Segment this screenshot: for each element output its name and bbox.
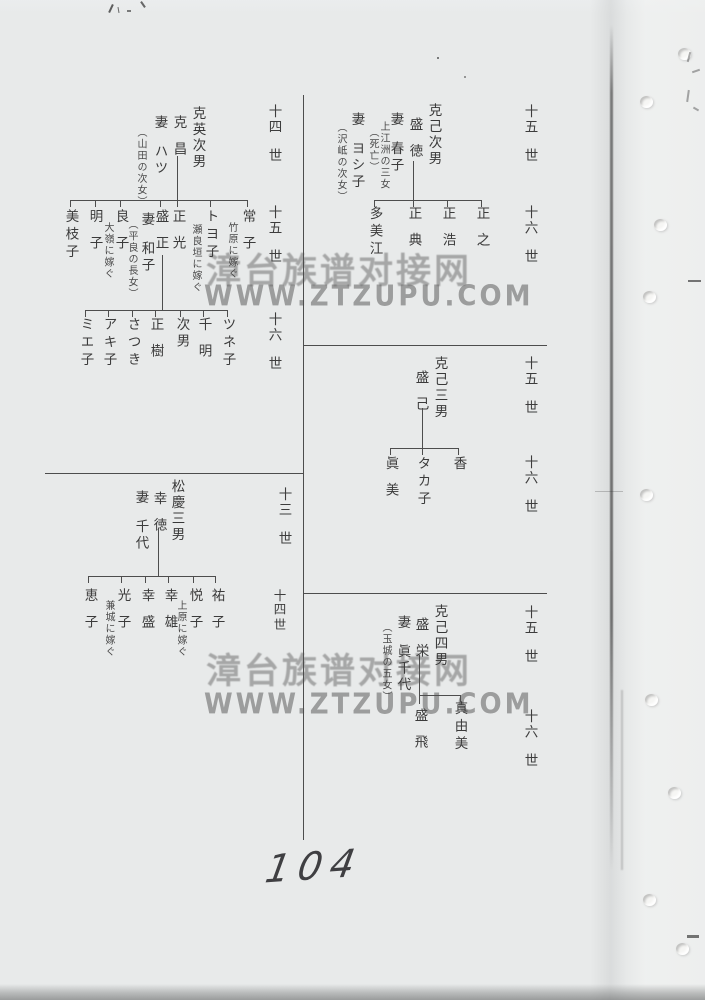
bracket-tick xyxy=(180,310,181,317)
ink-speck xyxy=(464,76,466,78)
binder-hole xyxy=(645,694,658,706)
generation-sei: 世 xyxy=(266,356,282,372)
bracket-tick xyxy=(121,576,122,583)
child-name: 香 xyxy=(451,456,465,473)
bracket-tick xyxy=(458,448,459,455)
grandchild-name: アキ子 xyxy=(101,317,115,370)
generation-number: 十五 xyxy=(522,104,538,135)
generation-sei: 世 xyxy=(266,148,282,164)
generation-marker: 十六世 xyxy=(522,205,536,265)
children-bracket xyxy=(70,200,247,201)
bracket-tick xyxy=(419,695,420,704)
ink-speck xyxy=(437,57,439,59)
wife-note: ︵山田の次女︶ xyxy=(135,127,145,208)
generation-marker: 十五世 xyxy=(522,104,536,164)
generation-number: 十四 xyxy=(272,589,287,616)
generation-number: 十六 xyxy=(522,709,538,740)
generation-sei: 世 xyxy=(522,400,538,416)
generation-marker: 十六世 xyxy=(522,709,536,769)
bracket-tick xyxy=(210,200,211,207)
bracket-tick xyxy=(95,200,96,207)
marriage-note: 竹原に嫁ぐ xyxy=(226,222,236,280)
child-name: 恵子 xyxy=(82,588,96,641)
child-name: 悦子 xyxy=(187,588,201,641)
binder-hole xyxy=(676,943,689,955)
children-bracket xyxy=(85,310,227,311)
generation-marker: 十五世 xyxy=(522,356,536,416)
section-title: 松慶三男 xyxy=(169,479,183,543)
wife-rel: 妻 xyxy=(152,115,168,132)
generation-marker: 十六世 xyxy=(266,312,280,372)
children-bracket xyxy=(419,695,460,696)
generation-sei: 世 xyxy=(522,249,538,265)
generation-number: 十五 xyxy=(522,356,538,387)
wife-name: ハツ xyxy=(152,144,168,177)
child-name: 盛正 xyxy=(153,209,167,262)
generation-marker: 十三世 xyxy=(276,487,290,547)
bracket-tick xyxy=(145,576,146,583)
child-name: 祐子 xyxy=(209,588,223,641)
wife-rel: 妻 xyxy=(133,490,149,507)
child-name: 正浩 xyxy=(440,206,454,259)
grandchild-name: 次男 xyxy=(174,317,188,350)
parent-connector xyxy=(413,161,414,200)
child-name: 幸雄 xyxy=(162,588,176,641)
generation-number: 十六 xyxy=(266,312,282,343)
generation-sei: 世 xyxy=(522,148,538,164)
center-divider-line xyxy=(303,95,304,840)
bracket-tick xyxy=(88,576,89,583)
wife-rel: 妻 xyxy=(139,212,155,229)
bracket-tick xyxy=(177,200,178,207)
parent-connector xyxy=(162,255,163,310)
generation-number: 十五 xyxy=(522,605,538,636)
grandchild-name: 千明 xyxy=(196,317,210,370)
child-name: トヨ子 xyxy=(203,209,217,262)
bracket-tick xyxy=(85,310,86,317)
generation-number: 十四 xyxy=(266,104,282,135)
watermark-url: WWW.ZTZUPU.COM xyxy=(204,281,533,313)
bracket-tick xyxy=(422,448,423,455)
grandchild-name: 正樹 xyxy=(148,317,162,370)
right-section-divider xyxy=(303,593,547,594)
parent-connector xyxy=(158,528,159,576)
wife-name: 和子 xyxy=(139,241,155,274)
wife-rel: 妻 xyxy=(395,615,411,632)
binder-hole xyxy=(654,219,667,231)
wife-note: 上江洲の三女 xyxy=(378,121,388,190)
bracket-tick xyxy=(168,576,169,583)
generation-number: 十六 xyxy=(522,205,538,236)
section-title: 克英次男 xyxy=(190,106,204,170)
bracket-tick xyxy=(390,448,391,455)
child-name: 明子 xyxy=(87,209,101,262)
child-name: タカ子 xyxy=(415,456,429,509)
child-name: 美枝子 xyxy=(63,209,77,262)
generation-marker: 十六世 xyxy=(522,455,536,515)
child-name: 正光 xyxy=(170,209,184,262)
bracket-tick xyxy=(247,200,248,207)
children-bracket xyxy=(390,448,458,449)
generation-marker: 十四世 xyxy=(272,589,285,632)
watermark-url: WWW.ZTZUPU.COM xyxy=(204,689,533,721)
section-title: 克己三男 xyxy=(432,356,446,420)
generation-marker: 十五世 xyxy=(266,205,280,265)
wife-column: 妻ハツ xyxy=(152,115,166,177)
wife-column: 妻ヨシ子 xyxy=(349,112,363,190)
wife-name: 春子 xyxy=(388,141,404,174)
grandchild-name: ツネ子 xyxy=(220,317,234,370)
wife-name: 眞千代 xyxy=(395,644,411,694)
section-title: 克己四男 xyxy=(432,604,446,668)
bracket-tick xyxy=(203,310,204,317)
generation-marker: 十五世 xyxy=(522,605,536,665)
scanned-genealogy-page: 漳台族谱对接网 WWW.ZTZUPU.COM 漳台族谱对接网 WWW.ZTZUP… xyxy=(0,0,705,1000)
children-bracket xyxy=(374,200,481,201)
left-section-divider xyxy=(45,473,303,474)
bracket-tick xyxy=(120,200,121,207)
generation-number: 十三 xyxy=(276,487,292,518)
right-section-divider xyxy=(303,345,547,346)
wife-note: ︵死亡︶ xyxy=(367,127,377,173)
wife-column: 妻和子 xyxy=(139,212,153,274)
child-name: 盛飛 xyxy=(412,708,426,761)
handwritten-page-number: 104 xyxy=(262,840,366,891)
pencil-dash xyxy=(688,280,701,282)
marriage-note: 大嶺に嫁ぐ xyxy=(102,222,112,280)
wife-column: 妻春子 xyxy=(388,112,402,174)
bracket-tick xyxy=(193,576,194,583)
binder-hole xyxy=(643,894,656,906)
child-name: 常子 xyxy=(240,209,254,262)
page-crease-secondary xyxy=(621,690,623,870)
generation-number: 十六 xyxy=(522,455,538,486)
wife-column: 妻眞千代 xyxy=(395,615,409,693)
faint-crease-line xyxy=(595,491,623,492)
child-name: 正之 xyxy=(474,206,488,259)
wife-name: 千代 xyxy=(133,519,149,552)
wife-note: ︵沢岻の次女︶ xyxy=(335,122,345,203)
binder-hole xyxy=(643,291,656,303)
bracket-tick xyxy=(70,200,71,207)
grandchild-name: ミエ子 xyxy=(78,317,92,370)
children-bracket xyxy=(88,576,215,577)
parent-connector xyxy=(419,655,420,695)
bracket-tick xyxy=(227,310,228,317)
marriage-note: 兼城に嫁ぐ xyxy=(103,600,113,658)
wife-name: ヨシ子 xyxy=(349,141,365,191)
generation-sei: 世 xyxy=(266,249,282,265)
child-name: 光子 xyxy=(115,588,129,641)
bracket-tick xyxy=(108,310,109,317)
binder-hole xyxy=(640,489,653,501)
child-name: 良子 xyxy=(113,209,127,262)
generation-marker: 十四世 xyxy=(266,104,280,164)
pencil-dash xyxy=(687,935,699,938)
generation-sei: 世 xyxy=(522,649,538,665)
ink-mark xyxy=(127,10,131,12)
child-name: 真由美 xyxy=(452,701,466,754)
parent-connector xyxy=(422,408,423,448)
father-name: 盛己 xyxy=(413,370,427,423)
section-title: 克己次男 xyxy=(426,103,440,167)
wife-column: 妻千代 xyxy=(133,490,147,552)
grandchild-name: さつき xyxy=(125,317,139,370)
generation-sei: 世 xyxy=(522,499,538,515)
generation-sei: 世 xyxy=(276,531,292,547)
wife-note: ︵玉城の五女︶ xyxy=(380,622,390,703)
generation-number: 十五 xyxy=(266,205,282,236)
bracket-tick xyxy=(132,310,133,317)
bracket-tick xyxy=(215,576,216,583)
generation-sei: 世 xyxy=(522,753,538,769)
generation-sei: 世 xyxy=(272,618,287,632)
parent-connector xyxy=(177,156,178,200)
page-crease xyxy=(610,25,613,870)
wife-rel: 妻 xyxy=(349,112,365,129)
child-name: 正典 xyxy=(406,206,420,259)
scan-bottom-shade xyxy=(0,984,705,1000)
binder-hole xyxy=(640,96,653,108)
bracket-tick xyxy=(160,200,161,207)
marriage-note: 瀬良垣に嫁ぐ xyxy=(190,224,200,293)
bracket-tick xyxy=(155,310,156,317)
child-name: 眞美 xyxy=(383,456,397,509)
child-name: 幸盛 xyxy=(139,588,153,641)
binder-hole xyxy=(668,787,681,799)
child-name: 多美江 xyxy=(367,206,381,259)
wife-rel: 妻 xyxy=(388,112,404,129)
